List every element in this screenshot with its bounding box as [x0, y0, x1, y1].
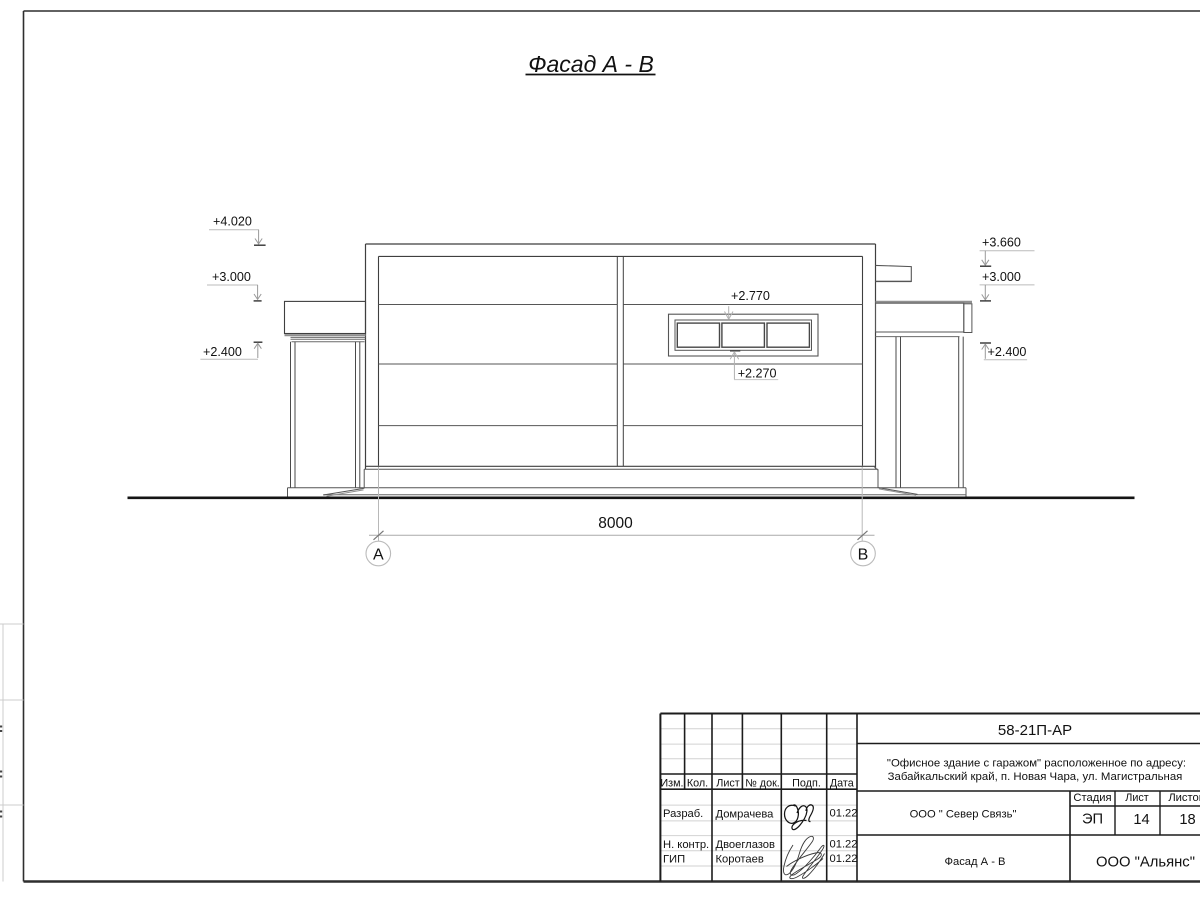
svg-text:Стадия: Стадия — [1073, 792, 1111, 804]
svg-text:А: А — [373, 546, 384, 563]
svg-text:+2.400: +2.400 — [203, 345, 242, 359]
svg-text:Изм.: Изм. — [660, 777, 683, 789]
svg-text:Фасад А - В: Фасад А - В — [528, 51, 654, 77]
svg-text:Кол.: Кол. — [687, 777, 708, 789]
svg-text:+2.770: +2.770 — [731, 289, 770, 303]
svg-text:01.22: 01.22 — [830, 853, 858, 865]
svg-text:Листов: Листов — [1168, 792, 1200, 804]
svg-text:Коротаев: Коротаев — [716, 854, 764, 866]
svg-text:ООО " Север Связь": ООО " Север Связь" — [910, 809, 1017, 821]
svg-text:01.22: 01.22 — [830, 808, 858, 820]
svg-text:Н. контр.: Н. контр. — [663, 839, 709, 851]
svg-text:Подп.: Подп. — [792, 777, 821, 789]
svg-text:58-21П-АР: 58-21П-АР — [998, 722, 1072, 739]
svg-text:Домрачева: Домрачева — [716, 808, 775, 820]
svg-text:В: В — [858, 546, 869, 563]
svg-text:ГИП: ГИП — [663, 853, 685, 865]
svg-text:+3.660: +3.660 — [982, 235, 1021, 249]
svg-text:+2.270: +2.270 — [738, 367, 777, 381]
svg-text:01.22: 01.22 — [830, 839, 858, 851]
svg-text:Лист: Лист — [716, 777, 740, 789]
svg-text:+3.000: +3.000 — [212, 270, 251, 284]
svg-text:№ док.: № док. — [745, 777, 780, 789]
svg-text:14: 14 — [1133, 812, 1149, 828]
svg-text:Забайкальский край, п. Новая Ч: Забайкальский край, п. Новая Чара, ул. М… — [888, 771, 1183, 783]
svg-text:Двоеглазов: Двоеглазов — [716, 839, 776, 851]
svg-text:ООО "Альянс": ООО "Альянс" — [1096, 855, 1195, 871]
svg-text:+4.020: +4.020 — [213, 215, 252, 229]
svg-text:"Офисное здание с гаражом" рас: "Офисное здание с гаражом" расположенное… — [887, 757, 1186, 769]
svg-text:+2.400: +2.400 — [988, 345, 1027, 359]
svg-text:Дата: Дата — [830, 777, 854, 789]
svg-text:+3.000: +3.000 — [982, 270, 1021, 284]
svg-text:ЭП: ЭП — [1082, 812, 1103, 828]
svg-text:Фасад А - В: Фасад А - В — [944, 856, 1005, 868]
svg-text:8000: 8000 — [598, 515, 633, 532]
svg-text:18: 18 — [1179, 812, 1195, 828]
svg-text:Лист: Лист — [1125, 792, 1149, 804]
svg-text:Разраб.: Разраб. — [663, 808, 703, 820]
